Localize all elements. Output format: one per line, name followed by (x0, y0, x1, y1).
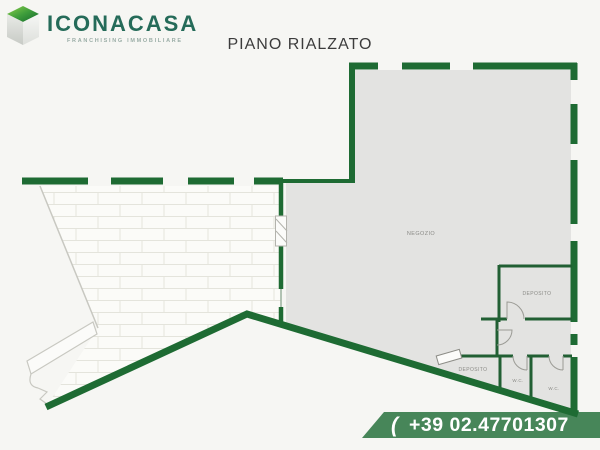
room-label-wc2: W.C. (548, 386, 559, 391)
floor-plan: NEGOZIO DEPOSITO DEPOSITO W.C. W.C. ( +3… (0, 0, 600, 450)
room-label-deposito2: DEPOSITO (459, 367, 488, 373)
room-label-wc1: W.C. (512, 378, 523, 383)
brand-name: ICONACASA (47, 13, 198, 35)
window-symbol (276, 216, 288, 246)
phone-banner[interactable]: ( +39 02.47701307 (362, 412, 600, 438)
room-label-negozio: NEGOZIO (407, 231, 435, 237)
room-label-deposito: DEPOSITO (523, 291, 552, 297)
floor-plan-title: PIANO RIALZATO (0, 36, 600, 54)
phone-number[interactable]: +39 02.47701307 (409, 414, 569, 436)
